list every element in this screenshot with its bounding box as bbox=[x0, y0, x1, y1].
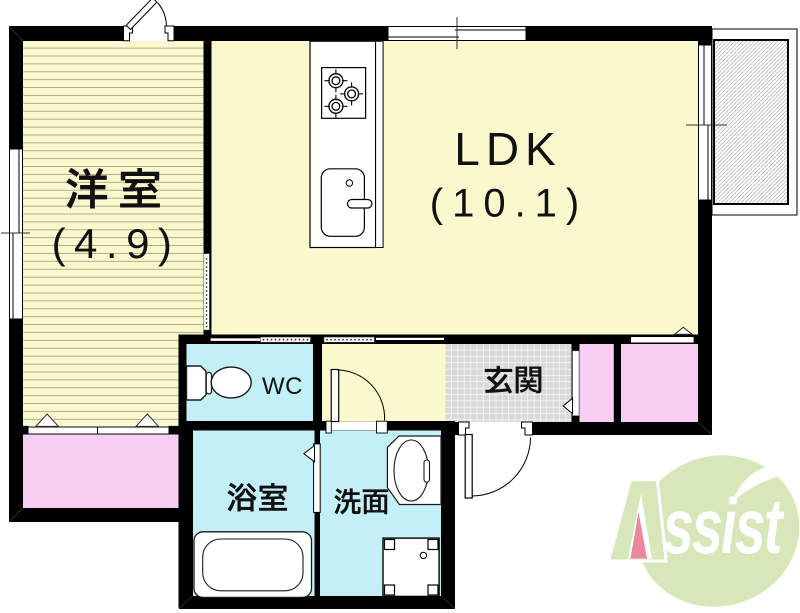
svg-text:ssist: ssist bbox=[663, 484, 784, 571]
svg-text:(4.9): (4.9) bbox=[52, 220, 181, 267]
svg-text:(10.1): (10.1) bbox=[430, 182, 589, 226]
svg-text:WC: WC bbox=[262, 373, 303, 400]
svg-text:LDK: LDK bbox=[454, 123, 561, 175]
